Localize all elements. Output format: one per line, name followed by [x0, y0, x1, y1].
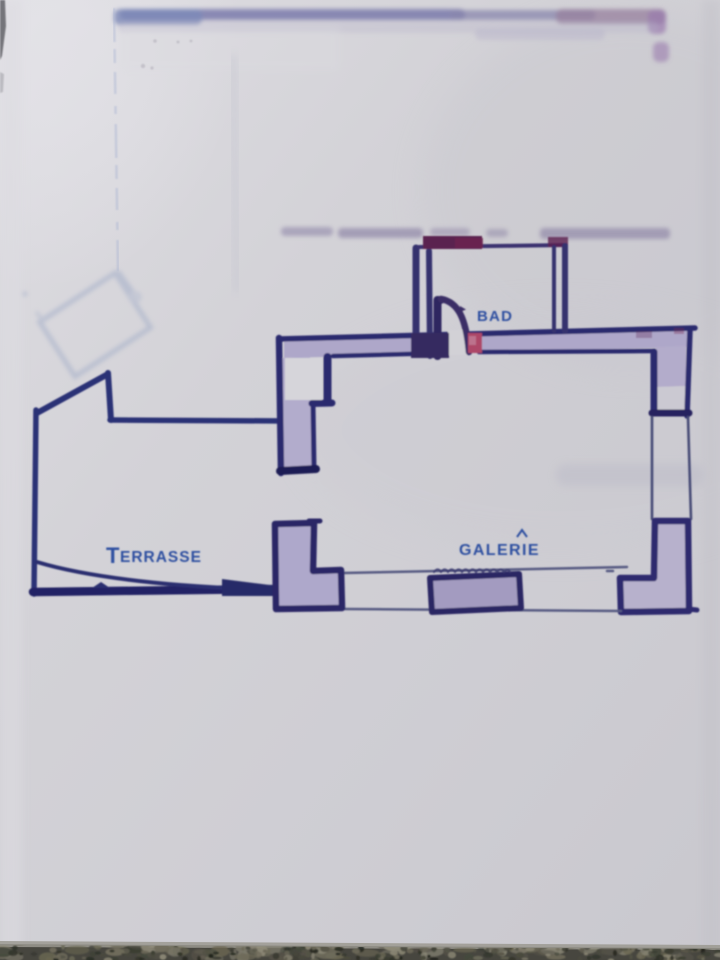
svg-text:BAD: BAD: [477, 308, 513, 325]
svg-text:T: T: [106, 543, 120, 568]
svg-text:GALERIE: GALERIE: [459, 542, 540, 559]
svg-text:ERRASSE: ERRASSE: [120, 549, 202, 566]
